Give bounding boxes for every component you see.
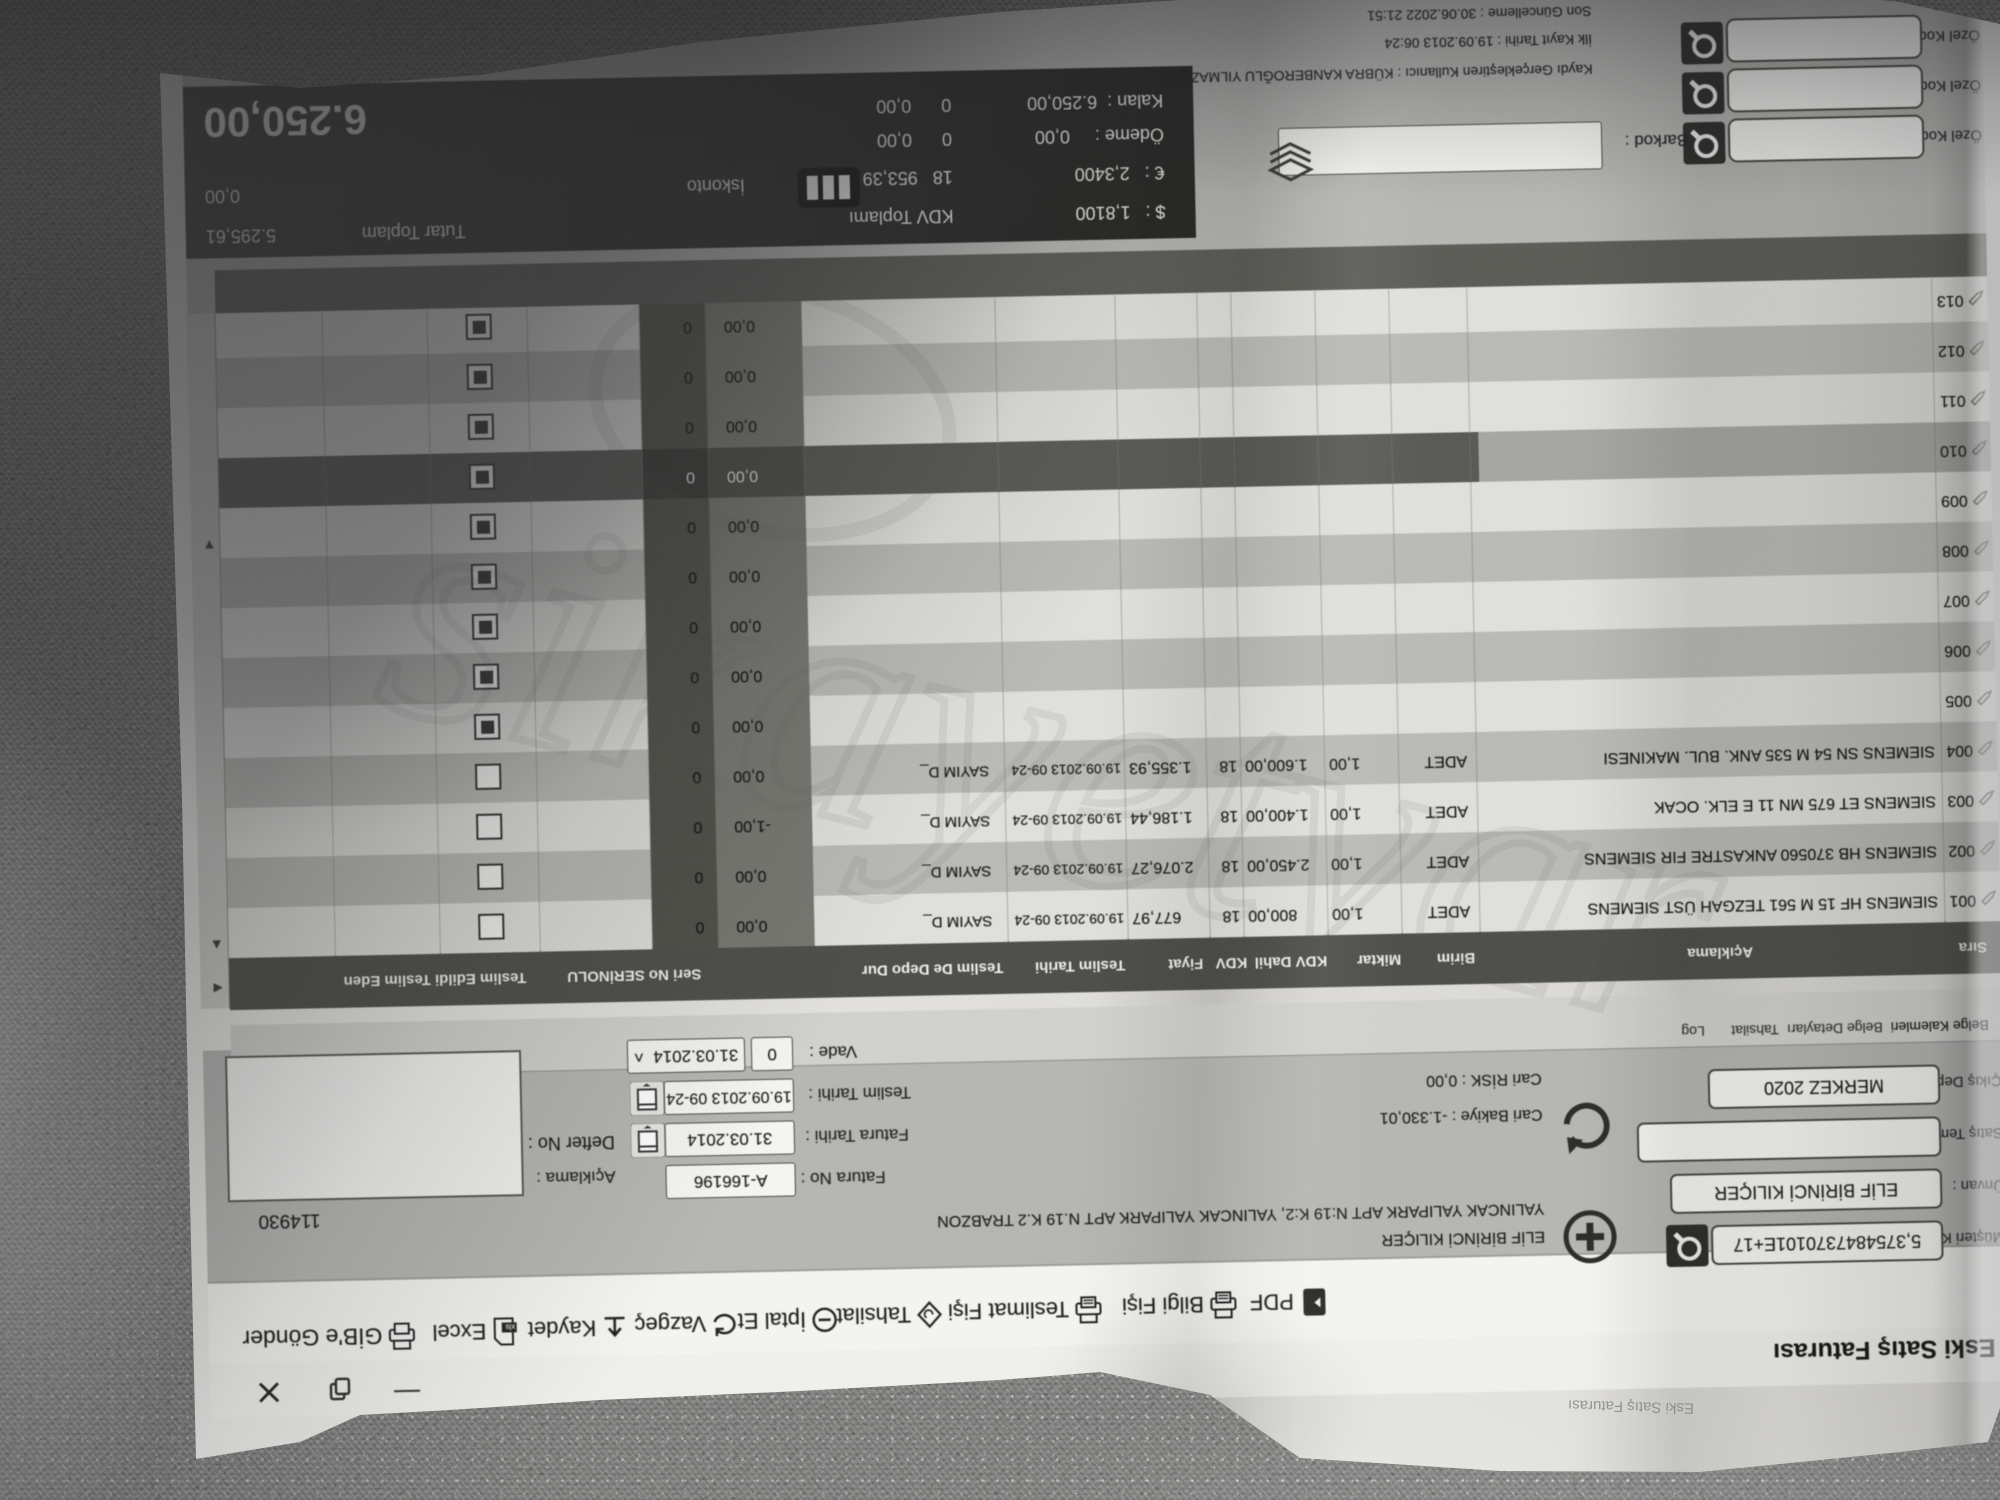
svg-text:xls: xls <box>505 1322 515 1331</box>
